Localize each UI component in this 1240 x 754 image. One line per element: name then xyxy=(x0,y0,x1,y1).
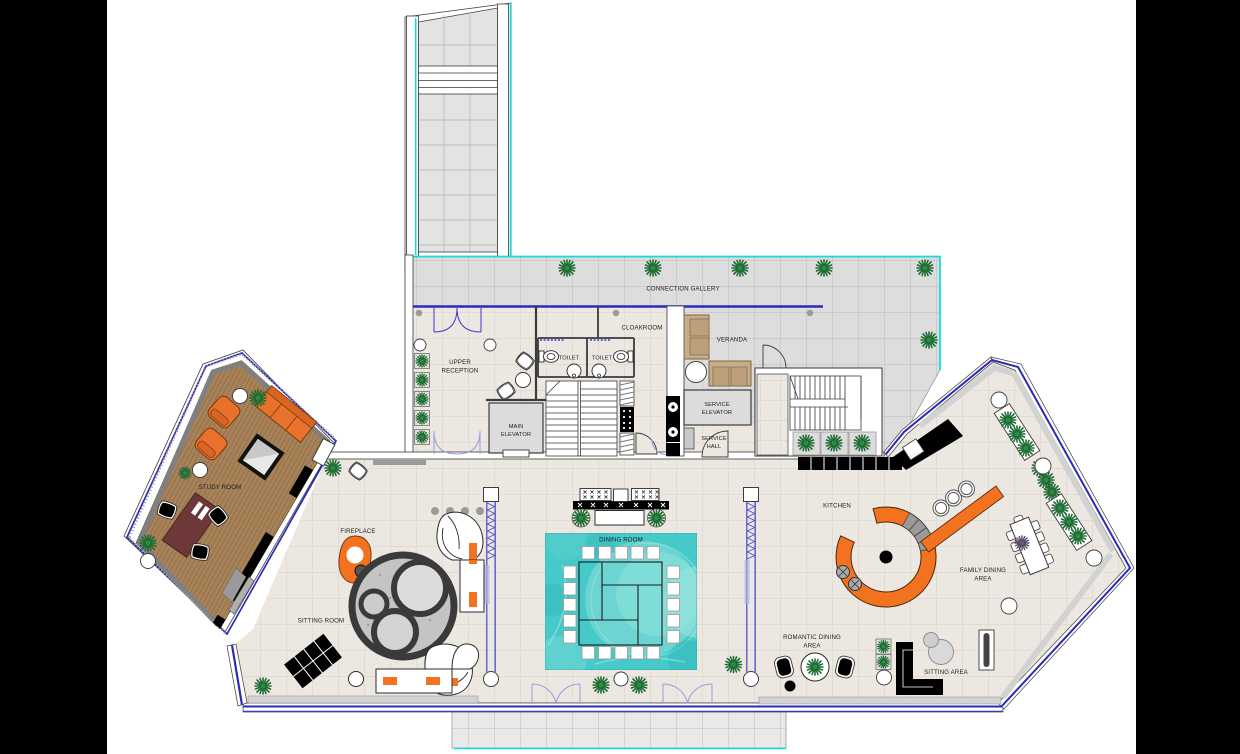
svg-text:HALL: HALL xyxy=(707,444,722,450)
svg-text:UPPER: UPPER xyxy=(449,359,471,366)
svg-text:FAMILY DINING: FAMILY DINING xyxy=(960,567,1006,574)
svg-text:KITCHEN: KITCHEN xyxy=(823,503,851,510)
svg-text:SERVICE: SERVICE xyxy=(704,402,730,408)
svg-text:MAIN: MAIN xyxy=(509,424,524,430)
svg-text:SITTING ROOM: SITTING ROOM xyxy=(298,618,345,625)
svg-text:TOILET: TOILET xyxy=(559,356,580,362)
svg-text:ROMANTIC DINING: ROMANTIC DINING xyxy=(783,634,841,641)
svg-text:AREA: AREA xyxy=(803,643,821,650)
svg-text:VERANDA: VERANDA xyxy=(717,337,748,344)
svg-text:FIREPLACE: FIREPLACE xyxy=(340,528,375,535)
svg-text:RECEPTION: RECEPTION xyxy=(442,368,479,375)
svg-text:ELEVATOR: ELEVATOR xyxy=(501,432,531,438)
svg-text:AREA: AREA xyxy=(974,576,992,583)
svg-text:ELEVATOR: ELEVATOR xyxy=(702,410,732,416)
svg-text:STUDY ROOM: STUDY ROOM xyxy=(199,484,242,491)
svg-text:CONNECTION GALLERY: CONNECTION GALLERY xyxy=(646,286,719,293)
svg-text:TOILET: TOILET xyxy=(592,356,613,362)
svg-text:CLOAKROOM: CLOAKROOM xyxy=(622,325,663,332)
svg-text:SITTING AREA: SITTING AREA xyxy=(924,669,969,676)
svg-text:DINING ROOM: DINING ROOM xyxy=(599,537,643,544)
svg-text:SERVICE: SERVICE xyxy=(701,436,727,442)
